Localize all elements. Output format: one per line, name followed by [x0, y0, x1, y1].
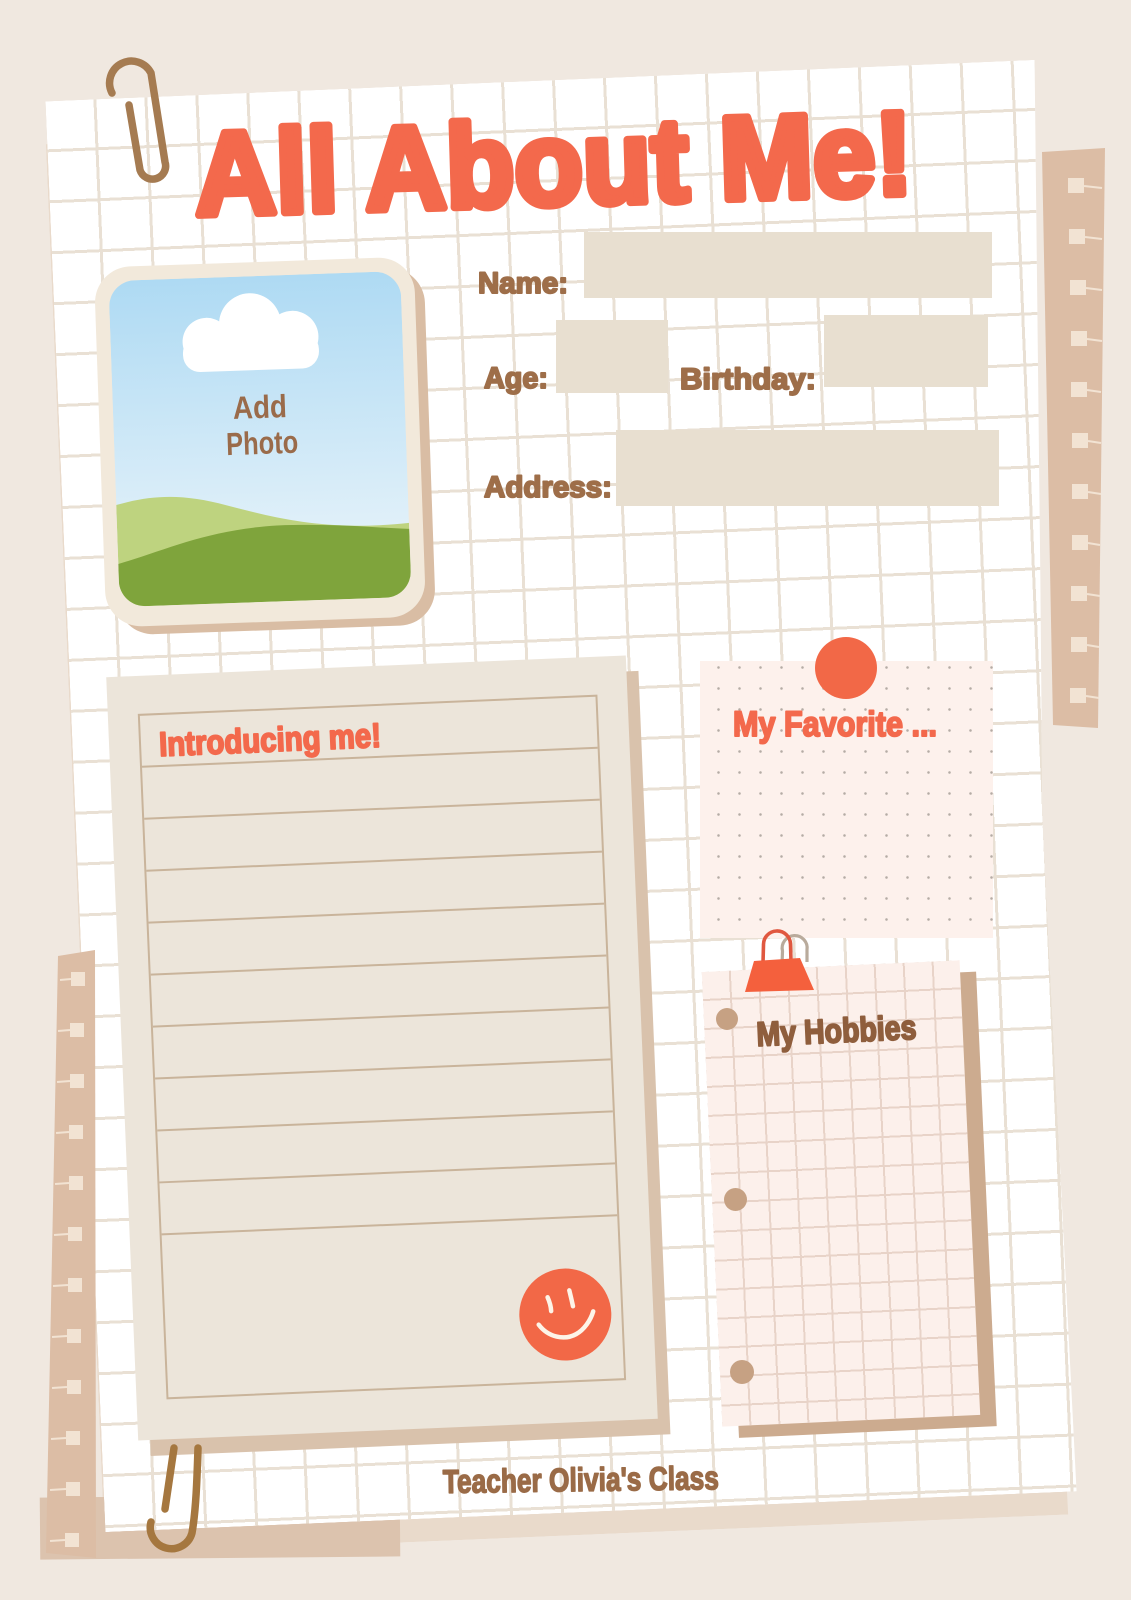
svg-text:Photo: Photo: [226, 424, 299, 462]
svg-text:Introducing me!: Introducing me!: [158, 717, 381, 764]
svg-text:My Hobbies: My Hobbies: [756, 1010, 918, 1054]
svg-text:Teacher Olivia's Class: Teacher Olivia's Class: [443, 1459, 719, 1500]
svg-text:All About Me!: All About Me!: [193, 88, 915, 241]
svg-text:My Favorite ...: My Favorite ...: [733, 705, 937, 744]
svg-text:Birthday:: Birthday:: [680, 363, 816, 396]
svg-text:Address:: Address:: [484, 471, 612, 504]
svg-text:Name:: Name:: [478, 267, 568, 300]
svg-text:Age:: Age:: [484, 362, 548, 395]
svg-text:Add: Add: [232, 388, 287, 426]
